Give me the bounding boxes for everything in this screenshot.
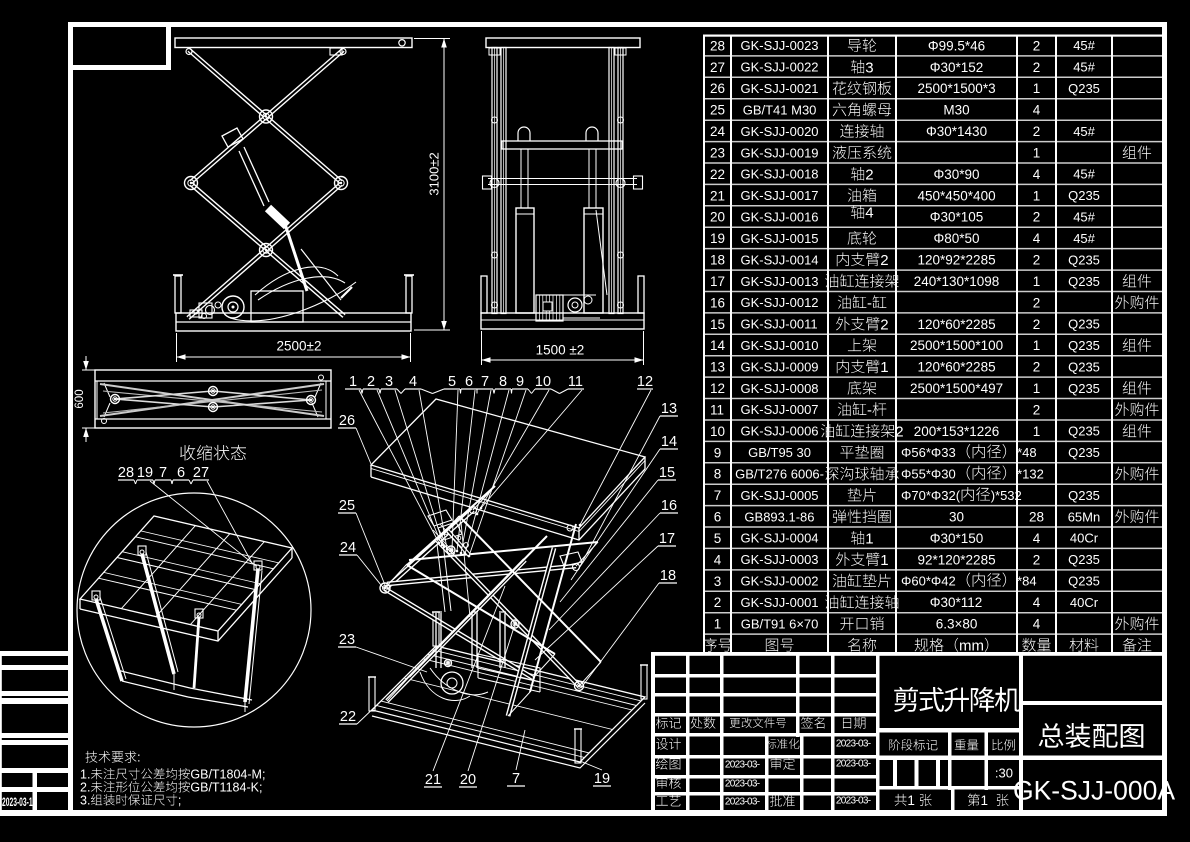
svg-text:GK-SJJ-0008: GK-SJJ-0008 xyxy=(741,381,819,396)
svg-text:Φ70*Φ32(: Φ70*Φ32( xyxy=(901,488,961,503)
svg-text:7: 7 xyxy=(714,488,722,503)
svg-text:*84: *84 xyxy=(1017,574,1037,589)
svg-text:GK-SJJ-0002: GK-SJJ-0002 xyxy=(741,574,819,589)
svg-text:1: 1 xyxy=(880,359,888,376)
svg-text:23: 23 xyxy=(339,632,355,648)
svg-text:1: 1 xyxy=(981,793,989,808)
svg-text:45#: 45# xyxy=(1073,210,1095,225)
svg-text:*48: *48 xyxy=(1017,445,1037,460)
svg-text:1: 1 xyxy=(1033,381,1041,396)
svg-text:20: 20 xyxy=(460,772,476,788)
svg-text:GK-SJJ-0014: GK-SJJ-0014 xyxy=(741,252,819,267)
svg-text:4: 4 xyxy=(1033,617,1041,632)
svg-text:9: 9 xyxy=(516,374,524,390)
svg-text:45#: 45# xyxy=(1073,231,1095,246)
svg-text:92*120*2285: 92*120*2285 xyxy=(918,552,996,567)
svg-text:65Mn: 65Mn xyxy=(1068,509,1101,524)
svg-text:4: 4 xyxy=(865,205,873,222)
svg-text:5: 5 xyxy=(714,531,722,546)
svg-text:8: 8 xyxy=(499,374,507,390)
svg-text:240*130*1098: 240*130*1098 xyxy=(914,274,1000,289)
svg-text:40Cr: 40Cr xyxy=(1070,531,1099,546)
svg-text:Q235: Q235 xyxy=(1068,359,1100,374)
svg-text:450*450*400: 450*450*400 xyxy=(918,188,996,203)
svg-text:2023-03-: 2023-03- xyxy=(725,797,760,808)
svg-text:Q235: Q235 xyxy=(1068,317,1100,332)
svg-text:2023-03-: 2023-03- xyxy=(725,779,760,790)
svg-text:26: 26 xyxy=(339,413,355,429)
svg-text:Q235: Q235 xyxy=(1068,445,1100,460)
svg-text:45#: 45# xyxy=(1073,60,1095,75)
svg-text:24: 24 xyxy=(340,540,356,556)
svg-text:Φ30*150: Φ30*150 xyxy=(930,531,984,546)
svg-text:2: 2 xyxy=(865,166,873,183)
svg-text:Q235: Q235 xyxy=(1068,574,1100,589)
svg-text:10: 10 xyxy=(710,424,725,439)
svg-text:GK-SJJ-0011: GK-SJJ-0011 xyxy=(741,317,818,332)
svg-text:2: 2 xyxy=(1033,124,1041,139)
svg-text:6: 6 xyxy=(714,509,722,524)
svg-text:1: 1 xyxy=(1033,424,1041,439)
svg-text:45#: 45# xyxy=(1073,38,1095,53)
svg-text:8: 8 xyxy=(714,467,722,482)
svg-text:GK-SJJ-0017: GK-SJJ-0017 xyxy=(741,188,819,203)
svg-text:Q235: Q235 xyxy=(1068,381,1100,396)
svg-text:5: 5 xyxy=(448,374,456,390)
svg-text:18: 18 xyxy=(660,568,676,584)
svg-text:GK-SJJ-0012: GK-SJJ-0012 xyxy=(741,295,819,310)
svg-text:Q235: Q235 xyxy=(1068,81,1100,96)
svg-text:2500*1500*3: 2500*1500*3 xyxy=(918,81,996,96)
svg-text:GB/T1804-M;: GB/T1804-M; xyxy=(190,768,265,782)
svg-text:3: 3 xyxy=(385,374,393,390)
svg-text:4: 4 xyxy=(409,374,417,390)
svg-text:2: 2 xyxy=(1033,402,1041,417)
svg-text:2500*1500*100: 2500*1500*100 xyxy=(910,338,1003,353)
svg-text:GK-SJJ-0007: GK-SJJ-0007 xyxy=(741,402,819,417)
svg-text:GK-SJJ-0018: GK-SJJ-0018 xyxy=(741,167,819,182)
svg-text:12: 12 xyxy=(637,374,653,390)
svg-text:2: 2 xyxy=(1033,38,1041,53)
svg-text:7: 7 xyxy=(481,374,489,390)
svg-text:GK-SJJ-0013: GK-SJJ-0013 xyxy=(741,274,819,289)
svg-text:11: 11 xyxy=(568,374,583,390)
svg-text:1: 1 xyxy=(1033,188,1041,203)
svg-text:2: 2 xyxy=(1033,295,1041,310)
svg-text:45#: 45# xyxy=(1073,167,1095,182)
svg-text:GK-SJJ-000A: GK-SJJ-000A xyxy=(1013,776,1175,806)
svg-text:GB/T91 6×70: GB/T91 6×70 xyxy=(741,616,819,631)
svg-text:200*153*1226: 200*153*1226 xyxy=(914,424,1000,439)
svg-text:Q235: Q235 xyxy=(1068,424,1100,439)
svg-text:13: 13 xyxy=(710,360,725,375)
svg-text:GK-SJJ-0020: GK-SJJ-0020 xyxy=(741,124,819,139)
svg-text:19: 19 xyxy=(710,231,725,246)
svg-text:4: 4 xyxy=(1033,531,1041,546)
svg-text:GB/T95 30: GB/T95 30 xyxy=(748,445,811,460)
svg-text:GK-SJJ-0021: GK-SJJ-0021 xyxy=(741,81,819,96)
svg-text:21: 21 xyxy=(710,188,725,203)
svg-text:3: 3 xyxy=(865,59,873,76)
svg-text:2: 2 xyxy=(367,374,375,390)
svg-text:GK-SJJ-0006: GK-SJJ-0006 xyxy=(741,424,819,439)
svg-text:45#: 45# xyxy=(1073,124,1095,139)
svg-text:40Cr: 40Cr xyxy=(1070,595,1099,610)
svg-text:22: 22 xyxy=(340,709,356,725)
svg-text:2500±2: 2500±2 xyxy=(277,338,322,353)
svg-text:120*60*2285: 120*60*2285 xyxy=(918,317,996,332)
svg-text:23: 23 xyxy=(710,146,725,161)
svg-text:Q235: Q235 xyxy=(1068,274,1100,289)
svg-text:Φ30*1430: Φ30*1430 xyxy=(926,124,987,139)
svg-text:Φ30*112: Φ30*112 xyxy=(930,595,983,610)
svg-text:GB/T276 6006-: GB/T276 6006- xyxy=(735,467,824,482)
svg-text:10: 10 xyxy=(535,374,551,390)
svg-text:7: 7 xyxy=(512,771,520,787)
svg-text:17: 17 xyxy=(710,274,725,289)
svg-text:GK-SJJ-0019: GK-SJJ-0019 xyxy=(741,145,819,160)
svg-text:1500 ±2: 1500 ±2 xyxy=(536,342,585,357)
svg-text:1: 1 xyxy=(907,793,915,808)
svg-text:6: 6 xyxy=(177,465,185,481)
svg-text:1: 1 xyxy=(880,552,888,569)
svg-text:26: 26 xyxy=(710,81,725,96)
svg-text:1: 1 xyxy=(714,617,722,632)
svg-text:25: 25 xyxy=(710,103,725,118)
svg-text:1: 1 xyxy=(1033,338,1041,353)
svg-text:4: 4 xyxy=(1033,595,1041,610)
svg-text:Q235: Q235 xyxy=(1068,338,1100,353)
svg-text:Q235: Q235 xyxy=(1068,252,1100,267)
svg-text:18: 18 xyxy=(710,253,725,268)
svg-text:3100±2: 3100±2 xyxy=(427,152,442,195)
svg-text:28: 28 xyxy=(118,465,134,481)
svg-text:GK-SJJ-0009: GK-SJJ-0009 xyxy=(741,359,819,374)
svg-text:GK-SJJ-0023: GK-SJJ-0023 xyxy=(741,38,819,53)
svg-text:2: 2 xyxy=(1033,552,1041,567)
svg-text:GB/T1184-K;: GB/T1184-K; xyxy=(190,781,262,795)
svg-text:2: 2 xyxy=(880,316,888,333)
svg-text:19: 19 xyxy=(594,771,610,787)
svg-text:2023-03-1: 2023-03-1 xyxy=(2,796,33,810)
svg-text:2: 2 xyxy=(714,595,722,610)
svg-text:4: 4 xyxy=(1033,103,1041,118)
svg-text:GK-SJJ-0004: GK-SJJ-0004 xyxy=(741,531,819,546)
svg-text:120*60*2285: 120*60*2285 xyxy=(918,360,996,375)
svg-text:;: ; xyxy=(178,794,181,808)
svg-text:Φ30*105: Φ30*105 xyxy=(930,210,984,225)
svg-text:2023-03-: 2023-03- xyxy=(725,760,760,771)
svg-text:GK-SJJ-0010: GK-SJJ-0010 xyxy=(741,338,819,353)
svg-text:GB893.1-86: GB893.1-86 xyxy=(744,509,814,524)
svg-text:6: 6 xyxy=(465,374,473,390)
svg-text:M30: M30 xyxy=(943,103,969,118)
svg-text:Φ30*152: Φ30*152 xyxy=(930,60,984,75)
svg-text:24: 24 xyxy=(710,124,726,139)
svg-text:12: 12 xyxy=(710,381,725,396)
svg-text:19: 19 xyxy=(137,465,153,481)
svg-text::: : xyxy=(137,750,141,765)
svg-text:Φ56*Φ33: Φ56*Φ33 xyxy=(901,445,956,460)
svg-text:13: 13 xyxy=(661,401,677,417)
svg-text:GK-SJJ-0003: GK-SJJ-0003 xyxy=(741,552,819,567)
svg-text:17: 17 xyxy=(659,531,675,547)
svg-text:27: 27 xyxy=(193,465,209,481)
svg-text:1.: 1. xyxy=(80,768,90,782)
svg-text:GB/T41 M30: GB/T41 M30 xyxy=(743,102,817,117)
svg-text:27: 27 xyxy=(710,60,725,75)
svg-text:GK-SJJ-0005: GK-SJJ-0005 xyxy=(741,488,819,503)
svg-text:4: 4 xyxy=(1033,231,1041,246)
svg-text:21: 21 xyxy=(425,772,441,788)
svg-text:16: 16 xyxy=(661,498,677,514)
svg-text:Φ30*90: Φ30*90 xyxy=(934,167,980,182)
svg-text:2.: 2. xyxy=(80,781,90,795)
svg-text:*132: *132 xyxy=(1017,467,1044,482)
svg-text:-: - xyxy=(867,402,872,419)
svg-text:22: 22 xyxy=(710,167,725,182)
svg-text:1: 1 xyxy=(349,374,357,390)
svg-text:4: 4 xyxy=(714,552,722,567)
svg-text:2: 2 xyxy=(895,423,903,440)
svg-text:20: 20 xyxy=(710,210,725,225)
svg-text:120*92*2285: 120*92*2285 xyxy=(918,253,996,268)
svg-text:4: 4 xyxy=(1033,167,1041,182)
svg-text:600: 600 xyxy=(74,389,86,408)
svg-text:2: 2 xyxy=(1033,210,1041,225)
svg-text:)*532: )*532 xyxy=(991,488,1022,503)
svg-text:GK-SJJ-0015: GK-SJJ-0015 xyxy=(741,231,819,246)
svg-text:2: 2 xyxy=(1033,60,1041,75)
svg-text:3.: 3. xyxy=(80,794,90,808)
svg-text:14: 14 xyxy=(710,338,726,353)
svg-text:GK-SJJ-0016: GK-SJJ-0016 xyxy=(741,210,819,225)
svg-text:Φ55*Φ30: Φ55*Φ30 xyxy=(901,467,956,482)
svg-text::30: :30 xyxy=(995,766,1013,781)
svg-text:-: - xyxy=(867,295,872,312)
svg-text:2500*1500*497: 2500*1500*497 xyxy=(910,381,1003,396)
svg-text:1: 1 xyxy=(1033,146,1041,161)
svg-text:1: 1 xyxy=(1033,274,1041,289)
svg-text:2023-03-: 2023-03- xyxy=(836,739,871,750)
svg-text:3: 3 xyxy=(714,574,722,589)
svg-text:Φ99.5*46: Φ99.5*46 xyxy=(928,38,985,53)
svg-text:2: 2 xyxy=(1033,360,1041,375)
svg-text:1: 1 xyxy=(865,530,873,547)
svg-text:15: 15 xyxy=(659,465,675,481)
svg-text:14: 14 xyxy=(661,434,677,450)
svg-text:15: 15 xyxy=(710,317,725,332)
svg-text:6.3×80: 6.3×80 xyxy=(936,617,978,632)
svg-text:Q235: Q235 xyxy=(1068,488,1100,503)
svg-text:Q235: Q235 xyxy=(1068,188,1100,203)
svg-text:2023-03-: 2023-03- xyxy=(836,796,871,807)
svg-text:Q235: Q235 xyxy=(1068,552,1100,567)
svg-text:GK-SJJ-0001: GK-SJJ-0001 xyxy=(741,595,819,610)
svg-text:mm: mm xyxy=(959,638,984,655)
svg-text:Φ60*Φ42: Φ60*Φ42 xyxy=(901,574,956,589)
svg-text:28: 28 xyxy=(710,38,725,53)
svg-text:GK-SJJ-0022: GK-SJJ-0022 xyxy=(741,60,819,75)
svg-text:2: 2 xyxy=(880,252,888,269)
svg-text:Φ80*50: Φ80*50 xyxy=(934,231,980,246)
svg-text:28: 28 xyxy=(1029,509,1044,524)
svg-text:25: 25 xyxy=(339,498,355,514)
svg-text:2023-03-: 2023-03- xyxy=(836,759,871,770)
svg-text:30: 30 xyxy=(949,509,964,524)
svg-text:11: 11 xyxy=(710,402,724,417)
svg-text:2: 2 xyxy=(1033,317,1041,332)
svg-text:7: 7 xyxy=(159,465,167,481)
svg-text:16: 16 xyxy=(710,295,725,310)
svg-text:2: 2 xyxy=(1033,253,1041,268)
svg-text:9: 9 xyxy=(714,445,722,460)
svg-text:1: 1 xyxy=(1033,81,1041,96)
